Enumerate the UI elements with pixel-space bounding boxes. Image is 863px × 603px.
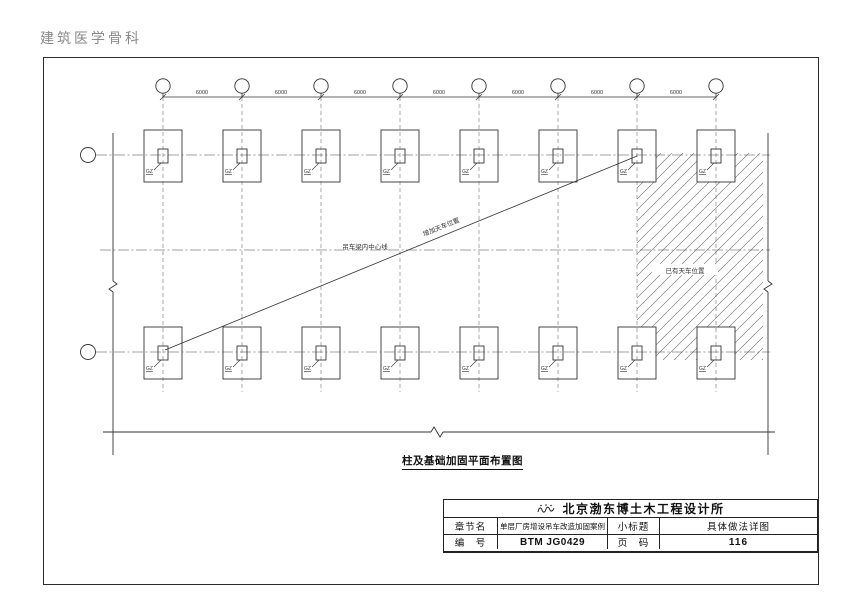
page: 建筑医学骨科 bbox=[0, 0, 863, 603]
chapter-label: 章节名 bbox=[444, 518, 498, 535]
svg-text:GZ: GZ bbox=[620, 169, 627, 175]
svg-text:GZ: GZ bbox=[541, 366, 548, 372]
chapter-value: 单层厂房增设吊车改造加固案例 bbox=[498, 518, 608, 535]
svg-text:已有天车位置: 已有天车位置 bbox=[666, 266, 706, 275]
svg-text:GZ: GZ bbox=[699, 169, 706, 175]
svg-text:GZ: GZ bbox=[146, 366, 153, 372]
company-name: 北京渤东博土木工程设计所 bbox=[562, 500, 724, 517]
number-value: BTM JG0429 bbox=[498, 535, 608, 549]
svg-text:GZ: GZ bbox=[383, 169, 390, 175]
title-block: 北京渤东博土木工程设计所 章节名 单层厂房增设吊车改造加固案例 小标题 具体做法… bbox=[443, 499, 818, 553]
svg-text:GZ: GZ bbox=[620, 366, 627, 372]
svg-text:6000: 6000 bbox=[670, 90, 682, 96]
svg-text:6000: 6000 bbox=[275, 90, 287, 96]
edge-line-right bbox=[764, 133, 772, 455]
svg-text:6000: 6000 bbox=[591, 90, 603, 96]
bottom-boundary-line bbox=[103, 427, 775, 437]
page-value: 116 bbox=[660, 535, 817, 549]
dimension-values: 6000 6000 6000 6000 6000 6000 6000 bbox=[196, 90, 682, 96]
svg-text:GZ: GZ bbox=[383, 366, 390, 372]
added-crane-label: 增加天车位置 bbox=[421, 215, 461, 238]
svg-text:6000: 6000 bbox=[512, 90, 524, 96]
svg-text:6000: 6000 bbox=[433, 90, 445, 96]
drawing-caption: 柱及基础加固平面布置图 bbox=[380, 451, 545, 470]
svg-text:GZ: GZ bbox=[462, 366, 469, 372]
page-label: 页 码 bbox=[608, 535, 660, 549]
svg-text:GZ: GZ bbox=[541, 169, 548, 175]
foundation-row-bottom bbox=[144, 327, 735, 379]
edge-line-left bbox=[109, 133, 117, 455]
svg-text:GZ: GZ bbox=[225, 169, 232, 175]
title-block-grid: 章节名 单层厂房增设吊车改造加固案例 小标题 具体做法详图 编 号 BTM JG… bbox=[444, 518, 817, 549]
svg-text:GZ: GZ bbox=[304, 366, 311, 372]
added-crane-diagonal-line bbox=[165, 156, 637, 350]
svg-text:GZ: GZ bbox=[225, 366, 232, 372]
svg-text:GZ: GZ bbox=[699, 366, 706, 372]
svg-text:GZ: GZ bbox=[304, 169, 311, 175]
svg-text:GZ: GZ bbox=[146, 169, 153, 175]
title-block-company-row: 北京渤东博土木工程设计所 bbox=[444, 500, 817, 518]
drawing-caption-text: 柱及基础加固平面布置图 bbox=[402, 453, 523, 470]
axis-bubbles-left bbox=[81, 148, 96, 360]
subtitle-label: 小标题 bbox=[608, 518, 660, 535]
svg-text:6000: 6000 bbox=[196, 90, 208, 96]
svg-text:GZ: GZ bbox=[462, 169, 469, 175]
subtitle-value: 具体做法详图 bbox=[660, 518, 817, 535]
crane-beam-centerline-label: 吊车梁内中心线 bbox=[342, 242, 388, 251]
number-label: 编 号 bbox=[444, 535, 498, 549]
existing-crane-label: 已有天车位置 bbox=[652, 264, 718, 275]
svg-text:6000: 6000 bbox=[354, 90, 366, 96]
foundation-row-top bbox=[144, 130, 735, 182]
design-institute-logo-icon bbox=[536, 503, 556, 515]
